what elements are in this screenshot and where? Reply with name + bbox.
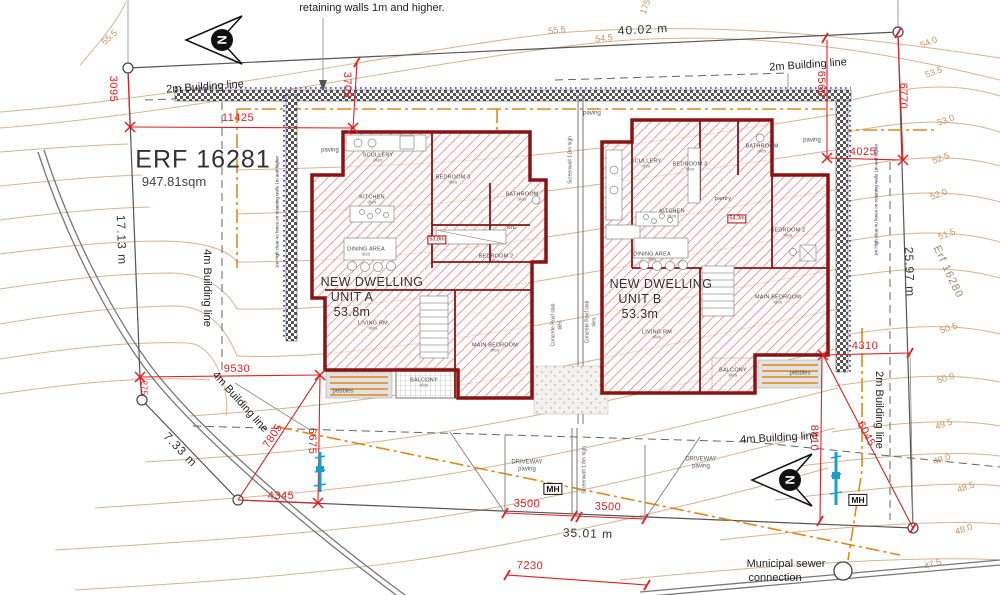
driveway-surface: paving	[685, 463, 716, 470]
roof-slab-note-a1: Concrete Roof slab	[551, 304, 557, 347]
room-a-balcony: BALCONYtiles	[410, 378, 438, 389]
dim-7230: 7230	[517, 559, 544, 572]
driveway-word: DRIVEWAY	[511, 459, 542, 466]
room-surface: tiles	[746, 150, 779, 155]
driveway-label-a: DRIVEWAYpaving	[511, 459, 542, 472]
unit-a-plan	[312, 132, 546, 398]
concrete-stoop	[534, 366, 608, 414]
room-a-dining: DINING AREAtiles	[347, 247, 385, 258]
sewer-note-2: connection	[748, 572, 801, 584]
clearvu-fence-note-right: 1m High clear-vu fence on retaining wall…	[875, 144, 880, 256]
pebbles-label-b: pebbles	[789, 371, 810, 378]
room-b-bed3: BEDROOM 3tiles	[673, 162, 708, 173]
room-surface: tiles	[755, 301, 801, 306]
unit-a-title-2: UNIT A	[331, 291, 373, 305]
unit-b-area: 53.3m	[622, 308, 659, 322]
driveway-surface: paving	[511, 466, 542, 473]
dim-8810: 8810	[808, 425, 820, 451]
room-a-bath: BATHROOMtiles	[506, 192, 539, 203]
floor-level-a: 53.8m	[427, 235, 446, 244]
room-a-bed3: BEDROOM 3tiles	[436, 175, 471, 186]
room-surface: tiles	[642, 336, 672, 341]
dim-3500-b: 3500	[595, 500, 622, 513]
room-a-living: LIVING RMtiles	[358, 321, 388, 332]
room-b-bath: BATHROOMtiles	[746, 144, 779, 155]
screenwall-note-mid: Screenwall 1.8m high	[568, 136, 574, 184]
room-surface: tiles	[771, 234, 806, 239]
room-b-scullery: SCULLERYtiles	[631, 159, 662, 170]
room-surface: tiles	[673, 168, 708, 173]
room-b-kitchen: KITCHENtiles	[659, 209, 685, 220]
room-surface: tiles	[410, 384, 438, 389]
room-surface: tiles	[359, 201, 385, 206]
room-surface: tiles	[506, 198, 539, 203]
dim-4025: 4025	[850, 146, 876, 158]
sewer-note-1: Municipal sewer	[747, 558, 826, 570]
boundary-dim-bottom: 35.01 m	[563, 527, 614, 542]
room-a-kitchen: KITCHENtiles	[359, 195, 385, 206]
erf-area: 947.81sqm	[142, 175, 206, 189]
paving-label-top: paving	[583, 111, 601, 118]
clearvu-fence-note-left: 1m High clear-vu fence on retaining wall…	[276, 156, 281, 268]
room-b-balcony: BALCONYtiles	[719, 368, 747, 379]
room-b-pantry: pantry	[715, 196, 732, 202]
unit-b-title-1: NEW DWELLING	[610, 278, 713, 292]
paving-label-right: paving	[803, 138, 821, 145]
building-line-4m-left: 4m Building line	[201, 249, 213, 327]
floor-level-b: 54.3m	[727, 214, 746, 223]
retaining-wall-note: retaining walls 1m and higher.	[299, 2, 445, 14]
dim-6560: 6560	[815, 71, 827, 97]
driveway-label-b: DRIVEWAYpaving	[685, 456, 716, 469]
dim-6770: 6770	[897, 83, 909, 109]
room-b-dining: DINING AREAtiles	[633, 252, 671, 263]
paving-label-left: paving	[321, 148, 339, 155]
room-a-scullery: SCULLERYtiles	[363, 153, 394, 164]
dim-3705: 3705	[341, 72, 353, 98]
room-b-bed2: BEDROOM 2tiles	[771, 228, 806, 239]
unit-a-title-1: NEW DWELLING	[321, 276, 424, 290]
room-name: pantry	[715, 196, 732, 202]
room-a-bc: B/C	[507, 225, 517, 231]
contour-55-5-b: 55.5	[548, 25, 566, 37]
dim-3500-a: 3500	[514, 497, 541, 510]
roof-slab-note-b1: Concrete Roof slab	[585, 301, 591, 344]
site-plan: retaining walls 1m and higher. ERF 16281…	[0, 0, 1000, 595]
boundary-dim-top: 40.02 m	[618, 22, 669, 38]
room-a-bed2: BEDROOM 2tiles	[479, 254, 514, 265]
dim-275: 275	[139, 381, 148, 396]
unit-b-title-2: UNIT B	[618, 293, 661, 307]
sewer-connection-circle	[834, 562, 852, 580]
screenwall-note-bottom: Screenwall 1.8m high	[582, 446, 588, 494]
dim-9530: 9530	[224, 363, 250, 375]
room-b-main-bed: MAIN BEDROOMtiles	[755, 295, 801, 306]
roof-slab-note-a2: tiles	[558, 321, 564, 330]
pebbles-label-a: pebbles	[332, 389, 353, 396]
erf-title: ERF 16281	[135, 146, 270, 174]
driveway-word: DRIVEWAY	[685, 456, 716, 463]
dim-4310: 4310	[852, 340, 878, 352]
dim-4345: 4345	[268, 490, 294, 502]
manhole-a: MH	[543, 483, 562, 495]
boundary-dim-left: 17.13 m	[114, 215, 129, 266]
room-a-main-bed: MAIN BEDROOMtiles	[472, 343, 518, 354]
room-surface: tiles	[363, 159, 394, 164]
room-surface: tiles	[659, 215, 685, 220]
dim-6675: 6675	[306, 428, 318, 454]
roof-slab-note-b2: tiles	[592, 318, 598, 327]
unit-a-area: 53.8m	[334, 306, 371, 320]
north-letter-top: N	[215, 35, 230, 44]
room-surface: tiles	[472, 349, 518, 354]
room-surface: tiles	[436, 181, 471, 186]
room-surface: tiles	[479, 260, 514, 265]
contour-54-5: 54.5	[595, 33, 613, 45]
room-name: B/C	[507, 225, 517, 231]
room-surface: tiles	[633, 258, 671, 263]
dim-11425: 11425	[222, 112, 254, 124]
room-b-living: LIVING RMtiles	[642, 330, 672, 341]
manhole-b: MH	[848, 494, 867, 506]
room-surface: tiles	[358, 327, 388, 332]
room-surface: tiles	[631, 165, 662, 170]
boundary-dim-right: 25.97 m	[902, 247, 917, 298]
driveway-edges	[450, 432, 700, 519]
room-surface: tiles	[719, 374, 747, 379]
room-surface: tiles	[347, 253, 385, 258]
north-letter-bottom: N	[783, 475, 798, 484]
dim-3095: 3095	[107, 76, 119, 102]
